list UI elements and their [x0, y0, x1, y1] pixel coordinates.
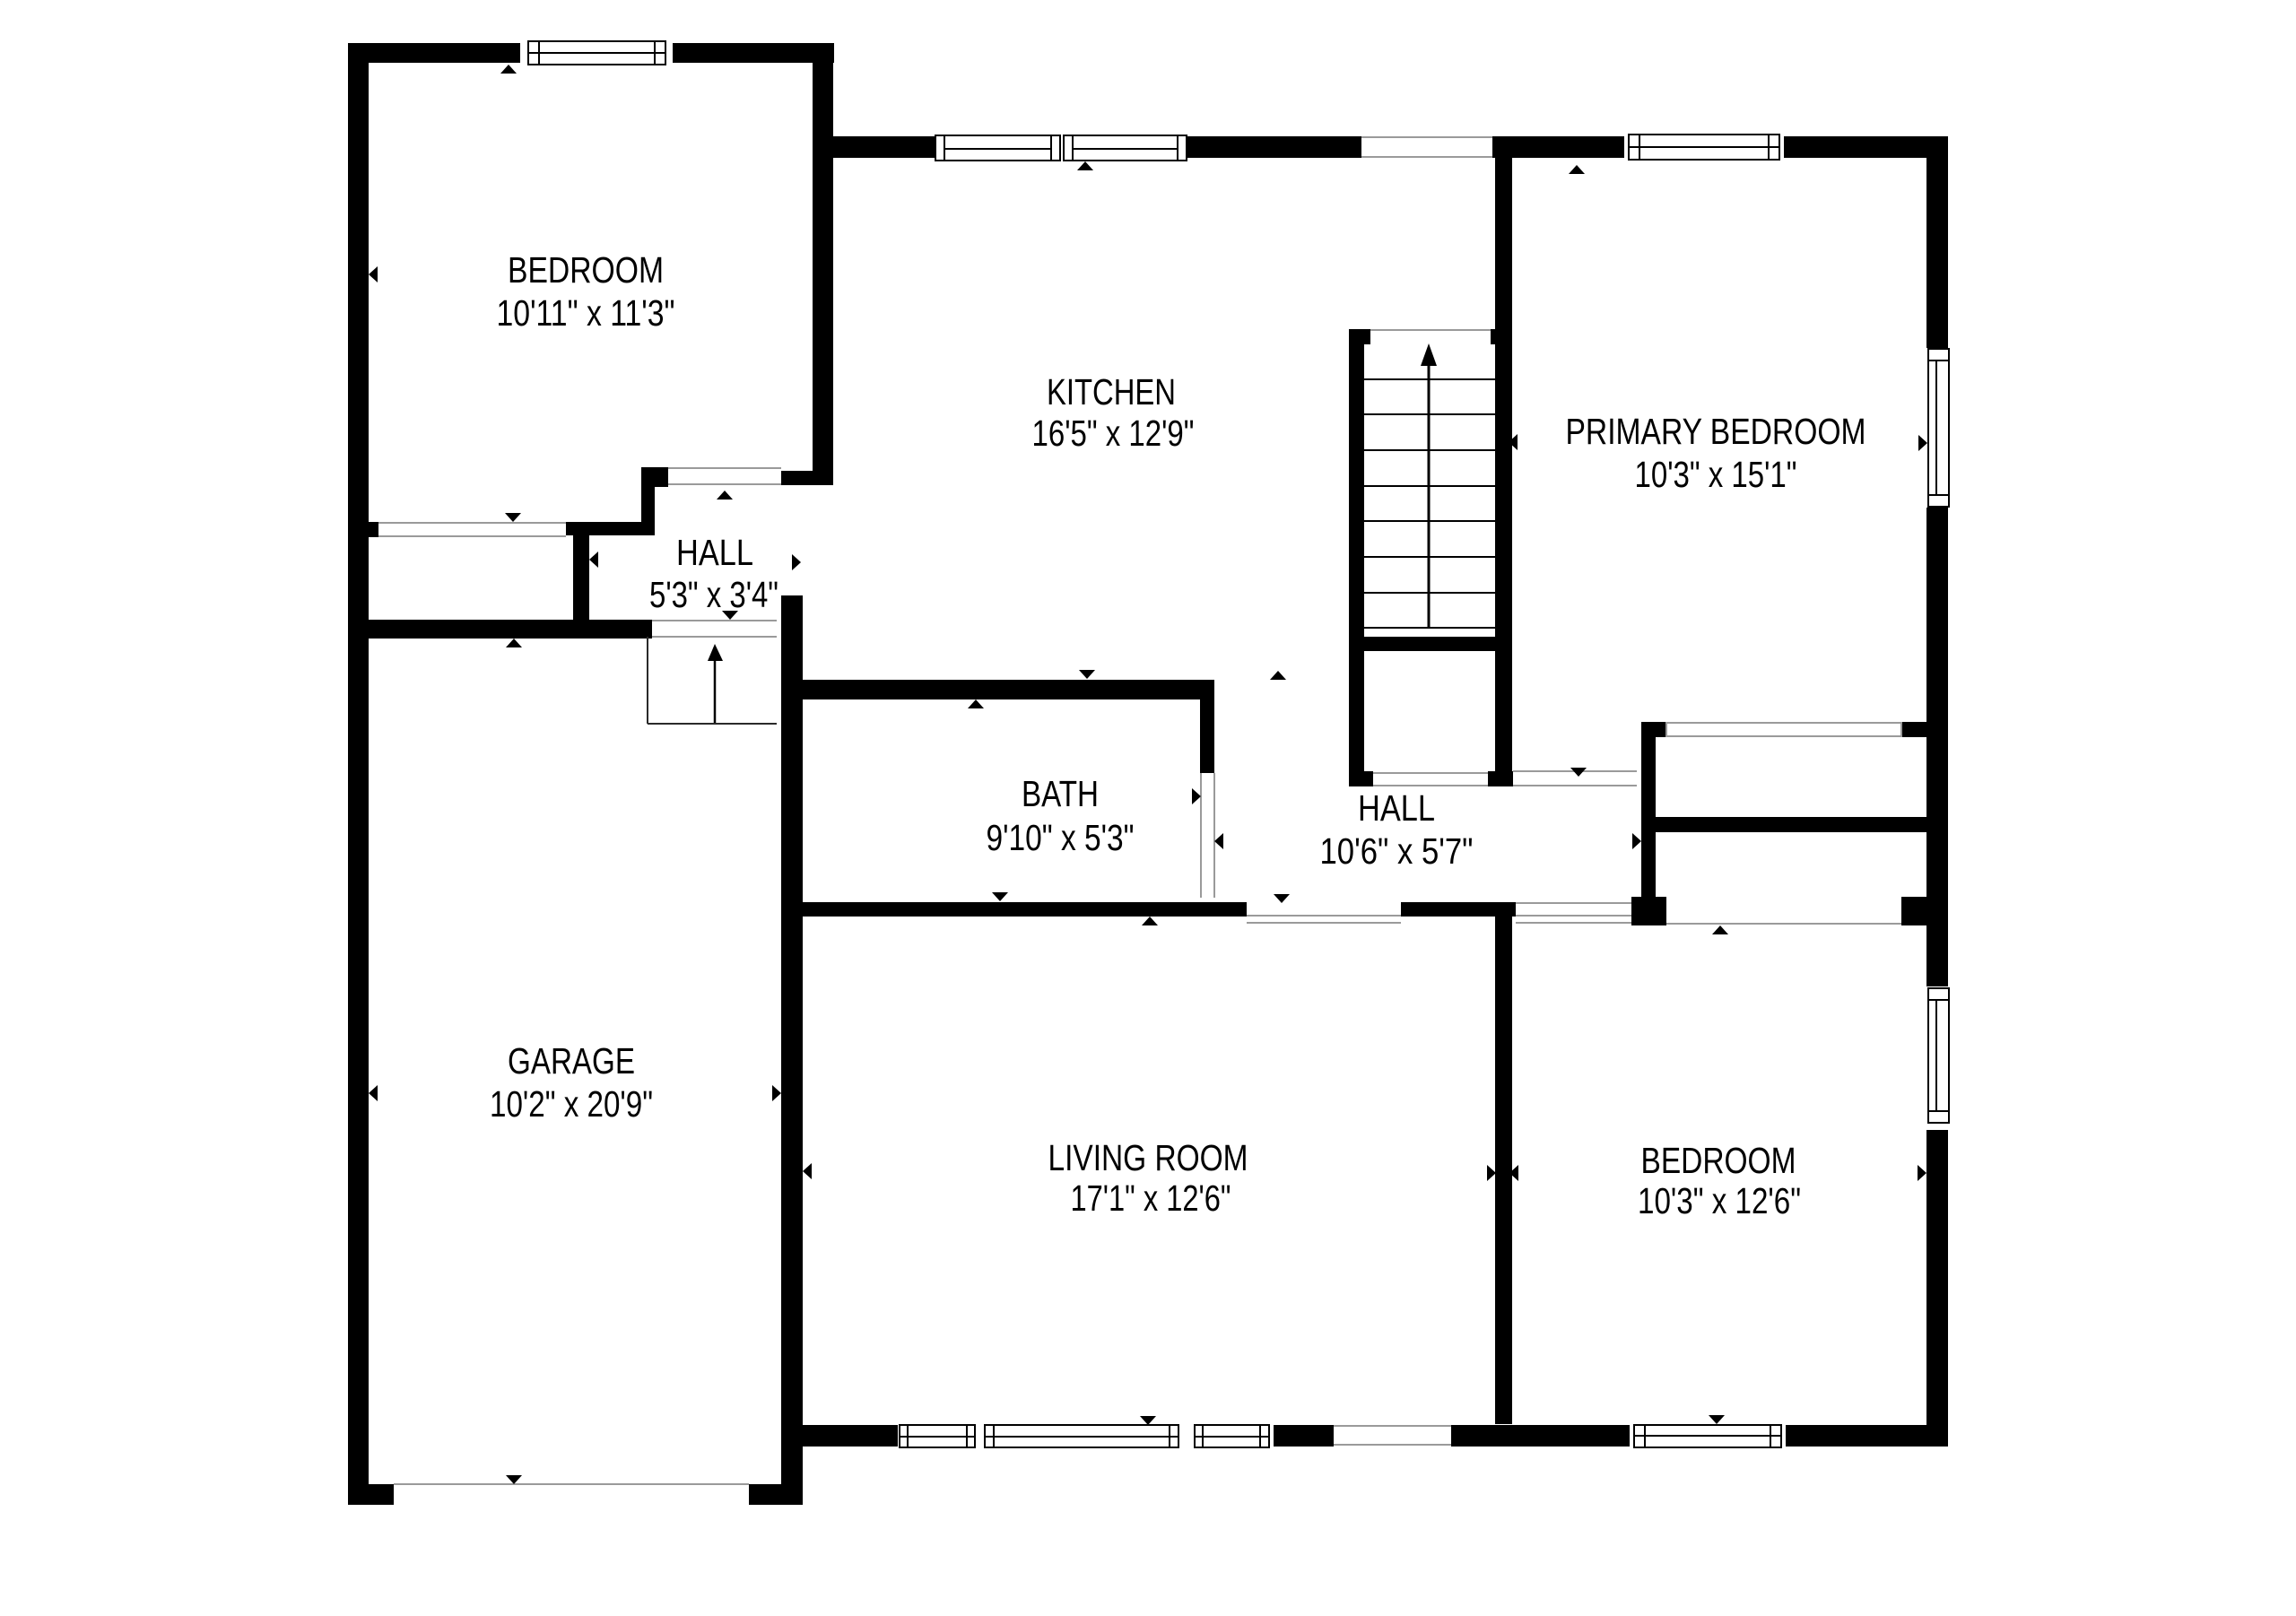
- svg-text:KITCHEN: KITCHEN: [1047, 371, 1176, 413]
- svg-text:10'3" x 15'1": 10'3" x 15'1": [1635, 454, 1797, 495]
- svg-text:10'2" x 20'9": 10'2" x 20'9": [490, 1083, 653, 1125]
- svg-text:BEDROOM: BEDROOM: [508, 249, 664, 291]
- svg-text:10'11" x 11'3": 10'11" x 11'3": [497, 292, 675, 334]
- svg-text:LIVING ROOM: LIVING ROOM: [1048, 1137, 1248, 1178]
- svg-text:17'1" x 12'6": 17'1" x 12'6": [1071, 1177, 1231, 1219]
- svg-text:5'3" x 3'4": 5'3" x 3'4": [649, 574, 778, 615]
- svg-text:HALL: HALL: [1358, 787, 1435, 829]
- svg-text:GARAGE: GARAGE: [508, 1040, 635, 1082]
- svg-text:PRIMARY BEDROOM: PRIMARY BEDROOM: [1566, 411, 1866, 452]
- svg-text:9'10" x 5'3": 9'10" x 5'3": [987, 817, 1135, 858]
- svg-text:10'3" x 12'6": 10'3" x 12'6": [1638, 1180, 1801, 1221]
- svg-text:HALL: HALL: [676, 532, 753, 573]
- svg-text:BATH: BATH: [1022, 773, 1099, 814]
- svg-text:10'6" x 5'7": 10'6" x 5'7": [1320, 830, 1474, 872]
- svg-text:16'5" x 12'9": 16'5" x 12'9": [1032, 413, 1195, 454]
- svg-text:BEDROOM: BEDROOM: [1641, 1140, 1796, 1181]
